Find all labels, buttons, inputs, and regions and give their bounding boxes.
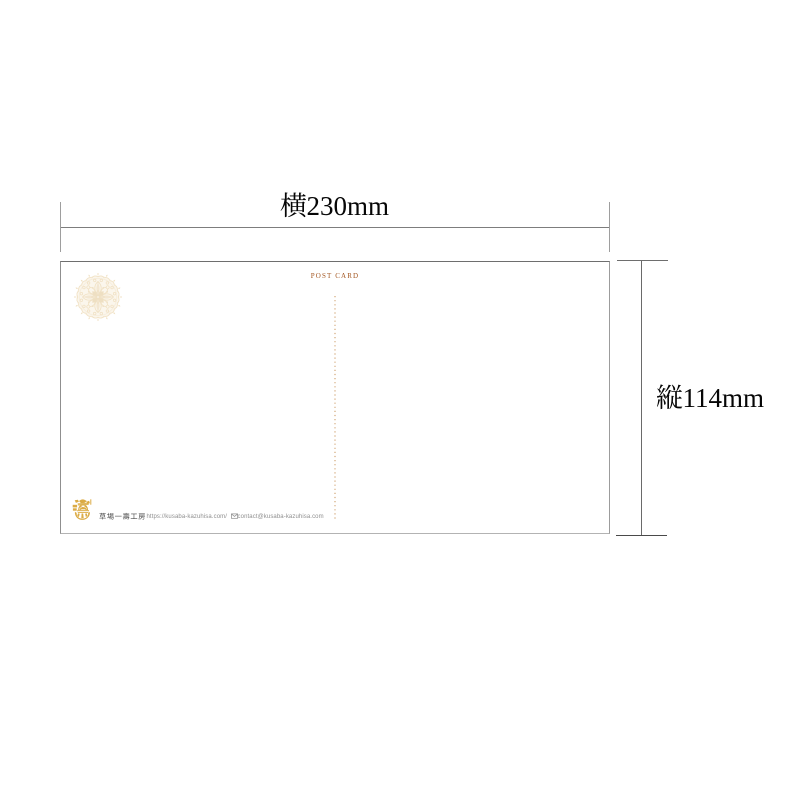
svg-text:230mm: 230mm — [307, 191, 390, 221]
svg-text:114mm: 114mm — [683, 383, 765, 413]
